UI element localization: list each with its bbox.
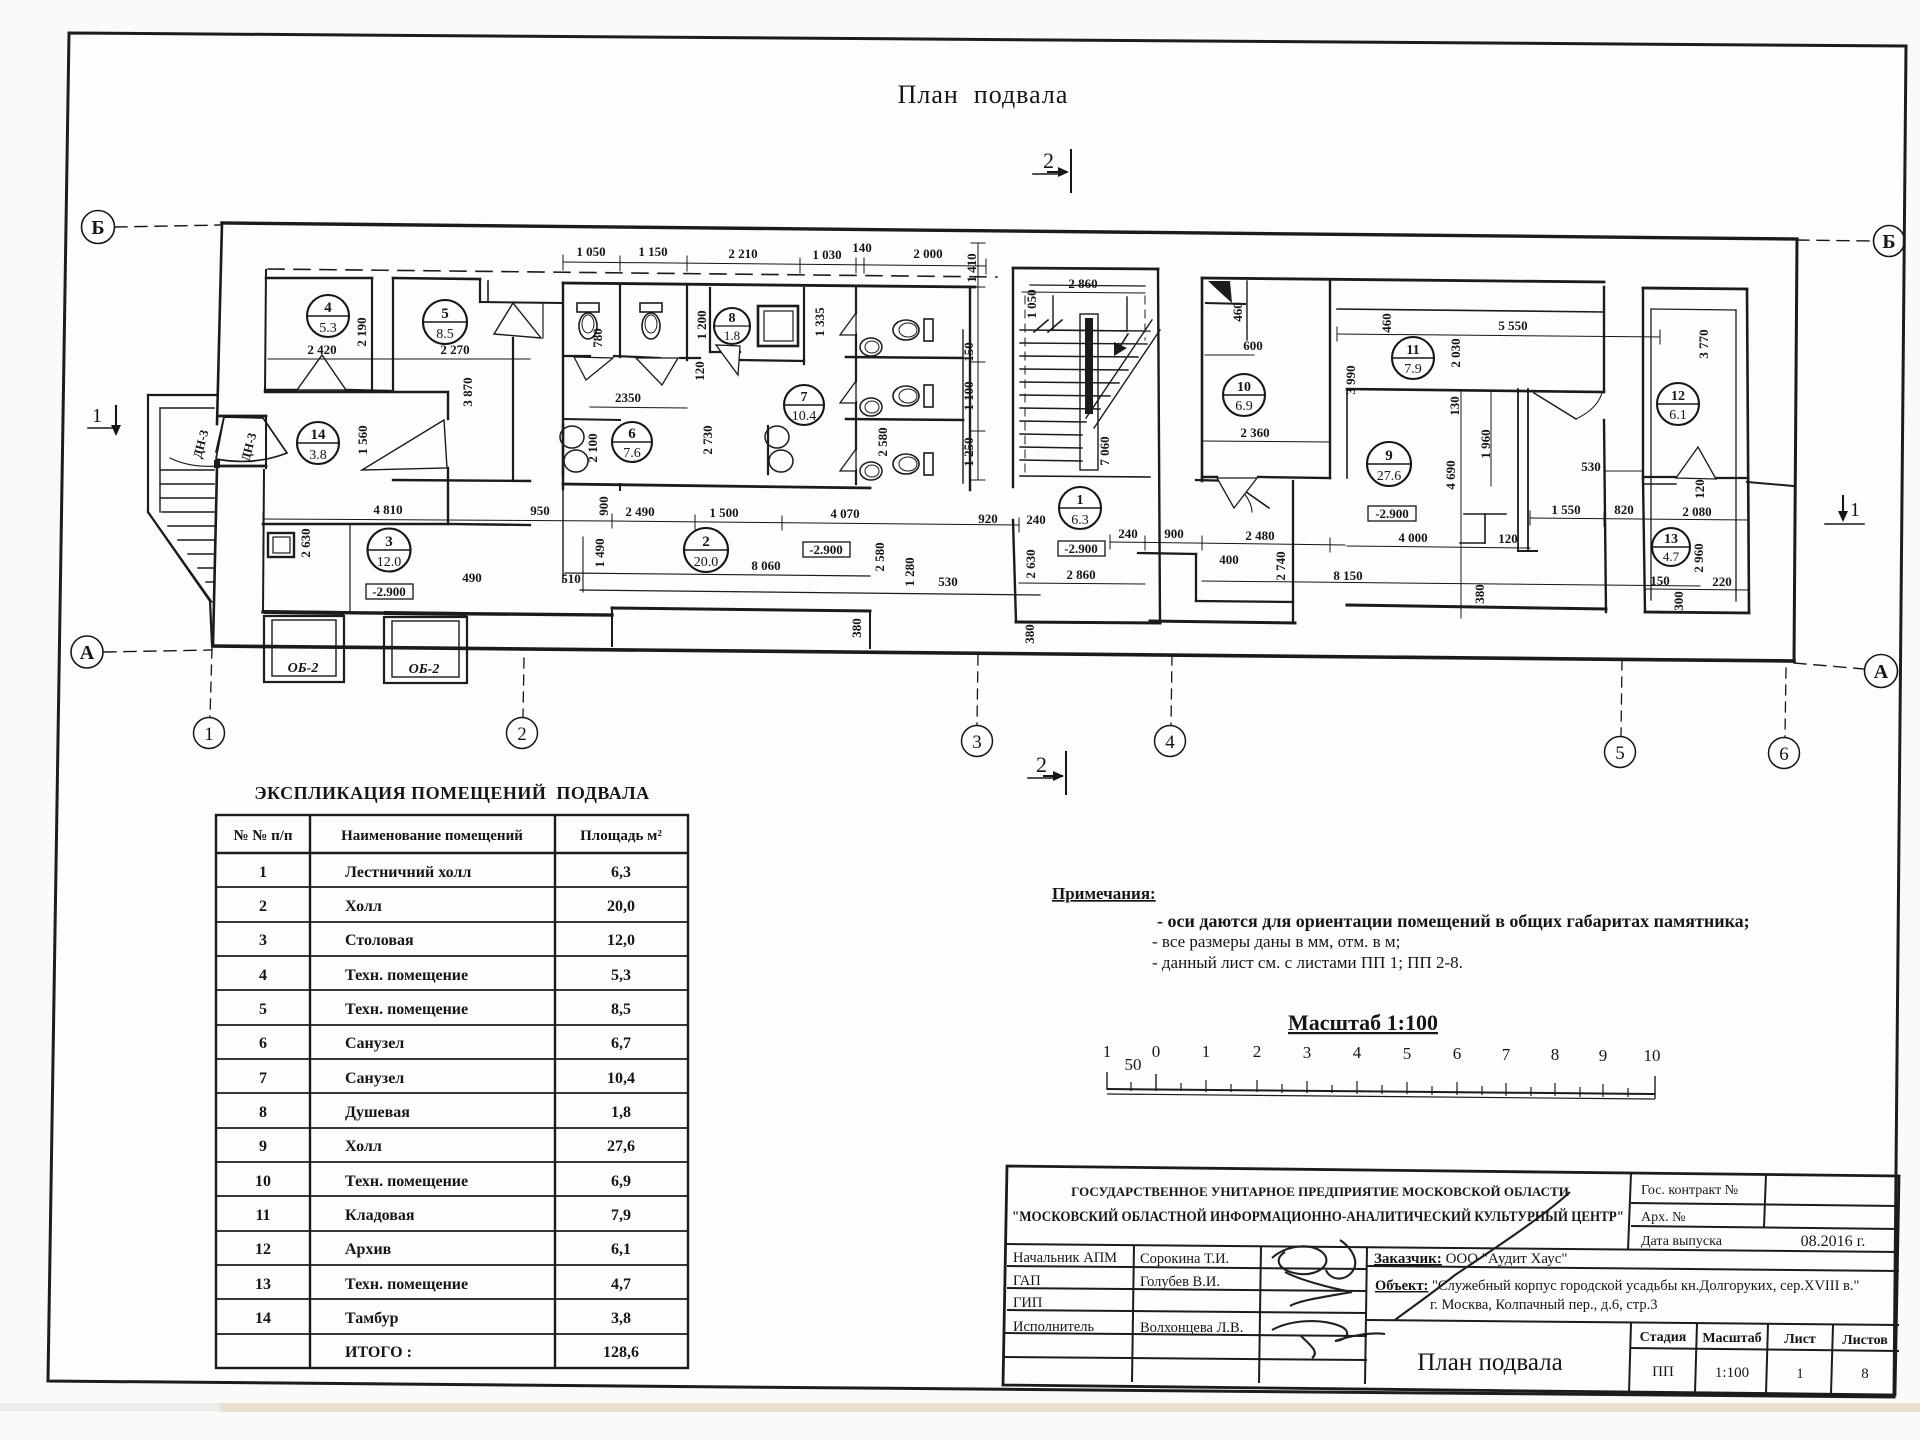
svg-text:Б: Б: [1882, 231, 1895, 253]
svg-text:1 100: 1 100: [961, 381, 976, 410]
svg-text:ИТОГО :: ИТОГО :: [345, 1344, 412, 1361]
svg-text:240: 240: [1118, 526, 1138, 541]
svg-text:1 410: 1 410: [964, 253, 979, 282]
svg-text:Волхонцева Л.В.: Волхонцева Л.В.: [1140, 1320, 1243, 1336]
svg-text:10,4: 10,4: [607, 1070, 635, 1087]
svg-text:2: 2: [1253, 1042, 1262, 1061]
svg-text:2 490: 2 490: [625, 504, 654, 519]
svg-text:Санузел: Санузел: [345, 1035, 404, 1052]
svg-text:1: 1: [1796, 1366, 1804, 1382]
svg-text:5: 5: [441, 306, 449, 322]
svg-text:380: 380: [1472, 584, 1487, 604]
svg-text:А: А: [1874, 661, 1889, 683]
svg-text:Сорокина Т.И.: Сорокина Т.И.: [1140, 1251, 1229, 1267]
svg-text:-2.900: -2.900: [809, 542, 843, 557]
svg-text:Столовая: Столовая: [345, 932, 414, 949]
svg-text:600: 600: [1243, 338, 1263, 353]
svg-text:0: 0: [1152, 1042, 1161, 1061]
svg-text:150: 150: [1650, 573, 1670, 588]
svg-text:13: 13: [255, 1276, 271, 1293]
svg-text:Санузел: Санузел: [345, 1070, 404, 1087]
svg-text:- оси даются для ориентации: - оси даются для ориентации помещений в …: [1157, 911, 1750, 931]
svg-text:780: 780: [590, 328, 605, 348]
svg-text:- все размеры даны в мм, отм: - все размеры даны в мм, отм. в м;: [1152, 932, 1400, 951]
svg-text:1: 1: [1850, 499, 1860, 521]
svg-text:2 210: 2 210: [728, 246, 757, 261]
svg-text:1 250: 1 250: [961, 437, 976, 466]
svg-text:1 500: 1 500: [709, 505, 738, 520]
svg-text:5,3: 5,3: [611, 967, 631, 984]
svg-text:1 550: 1 550: [1551, 502, 1580, 517]
svg-text:Гос. контракт №: Гос. контракт №: [1641, 1183, 1738, 1198]
svg-text:ОБ-2: ОБ-2: [288, 661, 319, 676]
svg-text:2 480: 2 480: [1245, 528, 1274, 543]
svg-text:ЭКСПЛИКАЦИЯ ПОМЕЩЕНИЙ ПОДВАЛА: ЭКСПЛИКАЦИЯ ПОМЕЩЕНИЙ ПОДВАЛА: [254, 782, 649, 803]
svg-text:1: 1: [259, 864, 267, 881]
svg-text:1 960: 1 960: [1478, 429, 1493, 458]
svg-text:8.5: 8.5: [436, 327, 454, 342]
svg-text:7,9: 7,9: [611, 1207, 631, 1224]
svg-text:4: 4: [259, 967, 267, 984]
svg-text:2 360: 2 360: [1240, 425, 1269, 440]
svg-text:Б: Б: [91, 217, 104, 239]
svg-text:460: 460: [1379, 313, 1394, 333]
svg-text:6.9: 6.9: [1235, 399, 1253, 414]
svg-text:130: 130: [1447, 396, 1462, 416]
svg-text:1: 1: [1077, 493, 1084, 508]
svg-text:380: 380: [1022, 624, 1037, 644]
svg-text:12.0: 12.0: [377, 555, 402, 570]
svg-text:3,8: 3,8: [611, 1310, 631, 1327]
svg-text:7 060: 7 060: [1097, 436, 1112, 465]
svg-text:27.6: 27.6: [1377, 469, 1402, 484]
svg-text:Душевая: Душевая: [345, 1104, 410, 1121]
svg-text:128,6: 128,6: [603, 1344, 639, 1361]
svg-text:Кладовая: Кладовая: [345, 1207, 415, 1224]
svg-text:3 870: 3 870: [460, 377, 475, 406]
svg-text:А: А: [80, 642, 95, 664]
svg-text:6,9: 6,9: [611, 1173, 631, 1190]
svg-text:1: 1: [204, 724, 214, 745]
svg-text:2 190: 2 190: [354, 317, 369, 346]
svg-text:7.9: 7.9: [1404, 362, 1422, 377]
svg-text:1 200: 1 200: [694, 310, 709, 339]
svg-text:5: 5: [1403, 1044, 1412, 1063]
svg-text:1 280: 1 280: [902, 557, 917, 586]
svg-text:1.8: 1.8: [724, 328, 740, 343]
svg-text:Масштаб 1:100: Масштаб 1:100: [1288, 1010, 1438, 1035]
svg-text:4: 4: [1165, 732, 1175, 753]
svg-text:510: 510: [561, 571, 581, 586]
svg-text:ГАП: ГАП: [1013, 1273, 1041, 1289]
svg-text:Холл: Холл: [345, 898, 382, 915]
svg-text:2350: 2350: [615, 390, 641, 405]
svg-text:1: 1: [1103, 1042, 1112, 1061]
svg-text:150: 150: [961, 342, 976, 362]
svg-text:Техн. помещение: Техн. помещение: [345, 1276, 468, 1293]
svg-text:13: 13: [1664, 532, 1678, 547]
svg-text:300: 300: [1671, 591, 1686, 611]
svg-text:- данный лист см. с листами ПП: - данный лист см. с листами ПП 1; ПП 2-8…: [1152, 953, 1463, 972]
svg-text:5: 5: [259, 1001, 267, 1018]
svg-text:1 030: 1 030: [812, 247, 841, 262]
svg-text:Наименование помещений: Наименование помещений: [341, 828, 523, 844]
svg-text:7: 7: [801, 390, 808, 405]
svg-text:5: 5: [1615, 743, 1625, 764]
svg-text:120: 120: [1692, 479, 1707, 499]
svg-text:2 580: 2 580: [872, 542, 887, 571]
svg-text:120: 120: [1498, 531, 1518, 546]
svg-text:400: 400: [1219, 552, 1239, 567]
svg-text:2 630: 2 630: [1023, 549, 1038, 578]
svg-text:6.3: 6.3: [1071, 513, 1089, 528]
svg-text:1,8: 1,8: [611, 1104, 631, 1121]
svg-text:380: 380: [849, 618, 864, 638]
svg-text:10.4: 10.4: [792, 409, 817, 424]
svg-text:8,5: 8,5: [611, 1001, 631, 1018]
svg-text:12: 12: [1671, 389, 1685, 404]
svg-text:5.3: 5.3: [319, 321, 337, 336]
svg-text:12: 12: [255, 1241, 271, 1258]
svg-text:6: 6: [259, 1035, 267, 1052]
svg-text:1 490: 1 490: [592, 538, 607, 567]
svg-text:6,3: 6,3: [611, 864, 631, 881]
svg-text:27,6: 27,6: [607, 1138, 635, 1155]
svg-text:Начальник АПМ: Начальник АПМ: [1013, 1250, 1117, 1266]
svg-text:Холл: Холл: [345, 1138, 382, 1155]
svg-text:4 810: 4 810: [373, 502, 402, 517]
svg-text:140: 140: [852, 240, 872, 255]
svg-text:-2.900: -2.900: [372, 584, 406, 599]
svg-text:7.6: 7.6: [623, 446, 641, 461]
svg-text:3: 3: [972, 732, 982, 753]
svg-text:4: 4: [324, 300, 332, 316]
svg-text:2: 2: [1043, 148, 1054, 173]
svg-text:6,1: 6,1: [611, 1241, 631, 1258]
svg-text:-2.900: -2.900: [1064, 541, 1098, 556]
svg-text:8 060: 8 060: [751, 558, 780, 573]
svg-text:20,0: 20,0: [607, 898, 635, 915]
svg-text:2 080: 2 080: [1682, 504, 1711, 519]
svg-text:Дата выпуска: Дата выпуска: [1641, 1234, 1723, 1249]
svg-text:530: 530: [1581, 459, 1601, 474]
svg-text:1 560: 1 560: [355, 425, 370, 454]
svg-text:1 050: 1 050: [576, 244, 605, 259]
svg-text:1: 1: [1202, 1042, 1211, 1061]
svg-text:План подвала: План подвала: [898, 80, 1069, 109]
svg-text:10: 10: [255, 1173, 271, 1190]
svg-text:Техн. помещение: Техн. помещение: [345, 967, 468, 984]
svg-text:14: 14: [311, 427, 327, 443]
svg-text:Техн. помещение: Техн. помещение: [345, 1001, 468, 1018]
svg-text:Техн. помещение: Техн. помещение: [345, 1173, 468, 1190]
svg-text:900: 900: [1164, 526, 1184, 541]
svg-text:План подвала: План подвала: [1417, 1349, 1563, 1376]
svg-text:240: 240: [1026, 512, 1046, 527]
svg-text:4,7: 4,7: [611, 1276, 631, 1293]
svg-text:2 420: 2 420: [307, 342, 336, 357]
svg-text:3 770: 3 770: [1696, 329, 1711, 358]
svg-text:10: 10: [1237, 380, 1251, 395]
svg-text:4: 4: [1353, 1043, 1362, 1062]
svg-text:2 960: 2 960: [1691, 543, 1706, 572]
svg-text:530: 530: [938, 574, 958, 589]
svg-text:2: 2: [517, 724, 527, 745]
svg-text:2 580: 2 580: [875, 427, 890, 456]
svg-text:820: 820: [1614, 502, 1634, 517]
svg-text:Арх. №: Арх. №: [1641, 1210, 1685, 1225]
svg-text:2 730: 2 730: [700, 425, 715, 454]
svg-text:3: 3: [385, 534, 393, 550]
svg-text:6.1: 6.1: [1669, 408, 1687, 423]
svg-text:2: 2: [1036, 752, 1047, 777]
svg-text:1:100: 1:100: [1715, 1365, 1749, 1381]
svg-text:50: 50: [1125, 1055, 1142, 1074]
svg-text:5 550: 5 550: [1498, 318, 1527, 333]
svg-text:8: 8: [1861, 1366, 1869, 1382]
svg-text:4.7: 4.7: [1663, 549, 1680, 564]
svg-text:2: 2: [702, 534, 710, 550]
svg-text:1: 1: [92, 405, 102, 427]
svg-text:3.8: 3.8: [309, 448, 327, 463]
svg-text:1 150: 1 150: [638, 244, 667, 259]
svg-text:2 860: 2 860: [1068, 276, 1097, 291]
svg-text:1 335: 1 335: [812, 307, 827, 337]
svg-text:Масштаб: Масштаб: [1702, 1331, 1761, 1346]
svg-text:7: 7: [259, 1070, 267, 1087]
svg-text:Лист: Лист: [1784, 1332, 1816, 1347]
svg-text:12,0: 12,0: [607, 932, 635, 949]
svg-text:№ № п/п: № № п/п: [233, 828, 292, 844]
svg-text:220: 220: [1712, 574, 1732, 589]
svg-text:Лестничний холл: Лестничний холл: [345, 864, 471, 881]
svg-text:14: 14: [255, 1310, 271, 1327]
svg-text:-2.900: -2.900: [1375, 506, 1409, 521]
svg-text:ГИП: ГИП: [1013, 1295, 1043, 1311]
svg-text:2: 2: [259, 898, 267, 915]
svg-text:4 070: 4 070: [830, 506, 859, 521]
svg-text:120: 120: [692, 361, 707, 381]
svg-text:460: 460: [1230, 302, 1245, 322]
svg-text:6,7: 6,7: [611, 1035, 631, 1052]
svg-text:3: 3: [1303, 1043, 1312, 1062]
svg-text:920: 920: [978, 511, 998, 526]
svg-text:9: 9: [1599, 1046, 1608, 1065]
svg-text:Тамбур: Тамбур: [345, 1310, 399, 1327]
svg-text:7: 7: [1502, 1045, 1511, 1064]
svg-text:2 740: 2 740: [1273, 551, 1288, 580]
svg-text:Примечания:: Примечания:: [1052, 884, 1156, 903]
svg-text:2 100: 2 100: [585, 433, 600, 462]
svg-text:ОБ-2: ОБ-2: [409, 662, 440, 677]
svg-text:900: 900: [596, 496, 611, 516]
svg-text:2 030: 2 030: [1448, 338, 1463, 367]
svg-text:1 050: 1 050: [1024, 289, 1039, 318]
svg-text:11: 11: [255, 1207, 270, 1224]
svg-text:Площадь м²: Площадь м²: [580, 828, 662, 844]
svg-text:8: 8: [729, 311, 736, 326]
svg-text:6: 6: [1453, 1044, 1462, 1063]
svg-text:20.0: 20.0: [694, 555, 719, 570]
svg-text:2 860: 2 860: [1066, 567, 1095, 582]
svg-text:Стадия: Стадия: [1640, 1330, 1687, 1345]
svg-text:Исполнитель: Исполнитель: [1013, 1319, 1094, 1335]
svg-text:490: 490: [462, 570, 482, 585]
svg-text:6: 6: [628, 426, 636, 442]
svg-text:2 270: 2 270: [440, 342, 469, 357]
svg-text:Листов: Листов: [1842, 1333, 1888, 1348]
svg-text:6: 6: [1779, 744, 1789, 765]
svg-text:9: 9: [1385, 448, 1393, 464]
svg-text:2 630: 2 630: [298, 528, 313, 557]
svg-text:08.2016 г.: 08.2016 г.: [1801, 1233, 1866, 1250]
svg-text:9: 9: [259, 1138, 267, 1155]
svg-text:4 690: 4 690: [1443, 460, 1458, 489]
svg-text:8: 8: [259, 1104, 267, 1121]
svg-text:950: 950: [530, 503, 550, 518]
svg-text:Голубев В.И.: Голубев В.И.: [1140, 1274, 1220, 1290]
svg-text:11: 11: [1406, 343, 1419, 358]
svg-text:2 000: 2 000: [913, 246, 942, 261]
svg-text:г. Москва, Колпачный пер., д.6: г. Москва, Колпачный пер., д.6, стр.3: [1430, 1297, 1657, 1313]
svg-text:10: 10: [1644, 1046, 1661, 1065]
svg-text:Архив: Архив: [345, 1241, 392, 1258]
svg-text:ГОСУДАРСТВЕННОЕ УНИТАРНОЕ ПРЕД: ГОСУДАРСТВЕННОЕ УНИТАРНОЕ ПРЕДПРИЯТИЕ МО…: [1071, 1184, 1569, 1199]
svg-text:4 000: 4 000: [1398, 530, 1427, 545]
svg-text:3: 3: [259, 932, 267, 949]
svg-text:8 150: 8 150: [1333, 568, 1362, 583]
svg-text:ПП: ПП: [1652, 1364, 1674, 1380]
svg-text:8: 8: [1551, 1045, 1560, 1064]
